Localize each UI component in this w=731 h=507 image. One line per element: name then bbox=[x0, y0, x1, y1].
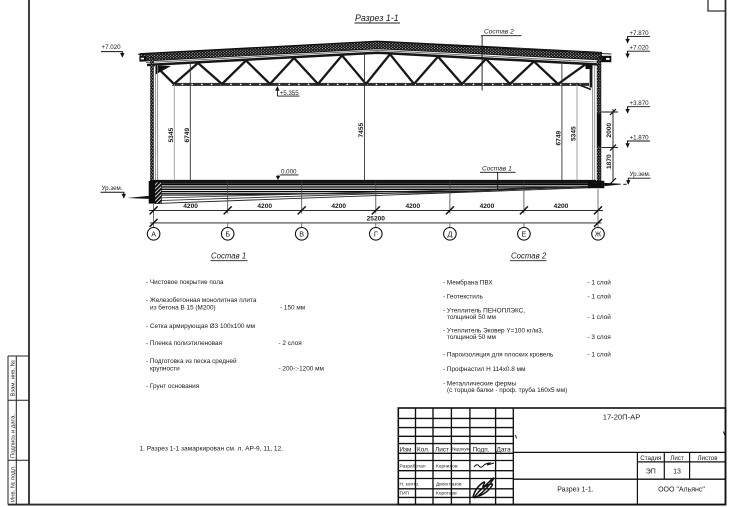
svg-text:+3.870: +3.870 bbox=[630, 100, 650, 107]
svg-text:- Подготовка из песка средней: - Подготовка из песка средней bbox=[146, 357, 237, 365]
svg-text:В: В bbox=[299, 229, 304, 238]
svg-text:4200: 4200 bbox=[405, 203, 420, 210]
svg-text:4200: 4200 bbox=[331, 203, 346, 210]
svg-text:из бетона В 15 (М200): из бетона В 15 (М200) bbox=[150, 303, 216, 311]
svg-text:6749: 6749 bbox=[555, 130, 562, 145]
svg-text:5345: 5345 bbox=[168, 127, 175, 142]
svg-text:17-20П-АР: 17-20П-АР bbox=[603, 413, 641, 422]
svg-text:- Грунт основания: - Грунт основания bbox=[146, 383, 200, 390]
svg-text:Состав 1: Состав 1 bbox=[211, 252, 246, 261]
svg-text:- Профнастил Н 114х0.8 мм: - Профнастил Н 114х0.8 мм bbox=[443, 366, 525, 373]
svg-text:+5.355: +5.355 bbox=[280, 90, 300, 97]
svg-text:- 200-:-1200 мм: - 200-:-1200 мм bbox=[279, 365, 324, 372]
svg-text:№докум.: №докум. bbox=[452, 447, 471, 452]
svg-text:13: 13 bbox=[673, 469, 681, 476]
svg-text:Подп.: Подп. bbox=[473, 446, 490, 453]
svg-text:- Пароизоляция для плоских кро: - Пароизоляция для плоских кровель bbox=[443, 352, 554, 359]
svg-text:4200: 4200 bbox=[257, 203, 272, 210]
svg-text:Д: Д bbox=[447, 229, 452, 238]
svg-text:Состав 1: Состав 1 bbox=[482, 166, 512, 173]
svg-text:1. Разрез 1-1 замаркирован см.: 1. Разрез 1-1 замаркирован см. л. АР-9, … bbox=[140, 446, 284, 453]
svg-text:А: А bbox=[151, 230, 156, 239]
svg-text:- 2 слоя: - 2 слоя bbox=[279, 340, 303, 347]
svg-text:- 1 слой: - 1 слой bbox=[588, 351, 612, 359]
svg-text:5345: 5345 bbox=[571, 126, 578, 141]
svg-text:ГИП: ГИП bbox=[400, 491, 410, 497]
svg-text:Стадия: Стадия bbox=[640, 455, 661, 462]
svg-text:Н. контр.: Н. контр. bbox=[400, 482, 420, 488]
svg-text:0.000: 0.000 bbox=[281, 168, 297, 175]
svg-text:Двоеглазов: Двоеглазов bbox=[436, 482, 462, 488]
svg-text:Инв. № подл.: Инв. № подл. bbox=[10, 465, 17, 502]
svg-text:Изм: Изм bbox=[400, 446, 412, 453]
svg-text:25200: 25200 bbox=[367, 216, 386, 223]
svg-text:4200: 4200 bbox=[183, 203, 198, 210]
svg-text:(с торцов балки - проф. труба: (с торцов балки - проф. труба 160х5 мм) bbox=[447, 386, 567, 394]
svg-text:Взам. инв. №: Взам. инв. № bbox=[10, 360, 17, 397]
svg-text:Кол.: Кол. bbox=[417, 446, 430, 453]
svg-text:1870: 1870 bbox=[606, 154, 613, 169]
svg-text:Листов: Листов bbox=[697, 455, 718, 462]
svg-text:Разрез 1-1.: Разрез 1-1. bbox=[557, 487, 593, 494]
svg-text:+7.870: +7.870 bbox=[630, 30, 650, 37]
svg-text:Лист: Лист bbox=[435, 446, 449, 453]
svg-text:- 150 мм: - 150 мм bbox=[280, 304, 305, 311]
svg-text:+7.020: +7.020 bbox=[630, 45, 650, 52]
svg-text:Ур.зем.: Ур.зем. bbox=[102, 185, 123, 192]
svg-text:ЭП: ЭП bbox=[646, 469, 656, 476]
svg-text:- Геотекстиль: - Геотекстиль bbox=[443, 293, 484, 300]
svg-text:ООО "Альянс": ООО "Альянс" bbox=[658, 487, 705, 494]
svg-text:Дата: Дата bbox=[497, 446, 512, 453]
svg-text:- Железобетонная монолитная п: - Железобетонная монолитная плита bbox=[146, 296, 257, 304]
svg-text:- 1 слой: - 1 слой bbox=[588, 292, 612, 300]
svg-text:Состав 2: Состав 2 bbox=[511, 252, 547, 261]
svg-text:- 1 слой: - 1 слой bbox=[588, 278, 612, 286]
svg-text:+1.870: +1.870 bbox=[630, 134, 650, 141]
svg-text:6749: 6749 bbox=[184, 127, 191, 142]
svg-text:Разработал: Разработал bbox=[400, 464, 426, 470]
svg-text:толщиной 50 мм: толщиной 50 мм bbox=[447, 313, 496, 321]
svg-text:Б: Б bbox=[225, 229, 230, 238]
svg-text:4200: 4200 bbox=[480, 203, 495, 210]
svg-text:крупности: крупности bbox=[150, 365, 180, 372]
svg-text:- Пленка полиэтиленовая: - Пленка полиэтиленовая bbox=[146, 340, 223, 347]
svg-text:4200: 4200 bbox=[554, 203, 569, 210]
svg-text:Корнилов: Корнилов bbox=[436, 464, 458, 470]
svg-text:- Мембрана ПВХ: - Мембрана ПВХ bbox=[443, 278, 493, 286]
svg-text:- Чистовое покрытие пола: - Чистовое покрытие пола bbox=[146, 279, 224, 286]
svg-text:толщиной 50 мм: толщиной 50 мм bbox=[447, 333, 496, 341]
svg-text:- 1 слой: - 1 слой bbox=[588, 313, 612, 321]
svg-text:+7.020: +7.020 bbox=[102, 44, 122, 51]
svg-text:Ур.зем.: Ур.зем. bbox=[630, 171, 651, 178]
svg-text:Ж: Ж bbox=[595, 229, 602, 238]
svg-text:Лист: Лист bbox=[670, 455, 684, 462]
svg-text:Коротаев: Коротаев bbox=[436, 491, 457, 497]
svg-text:- 3 слоя: - 3 слоя bbox=[588, 334, 612, 341]
svg-text:Е: Е bbox=[522, 229, 527, 238]
svg-text:Г: Г bbox=[374, 229, 378, 238]
svg-text:- Сетка армирующая Ø3 100х100: - Сетка армирующая Ø3 100х100 мм bbox=[146, 323, 255, 330]
svg-text:7455: 7455 bbox=[358, 122, 365, 137]
svg-text:2000: 2000 bbox=[606, 123, 613, 138]
svg-text:Разрез 1-1: Разрез 1-1 bbox=[355, 13, 399, 23]
svg-text:Состав 2: Состав 2 bbox=[484, 29, 514, 36]
svg-text:Подпись и дата.: Подпись и дата. bbox=[11, 414, 17, 458]
